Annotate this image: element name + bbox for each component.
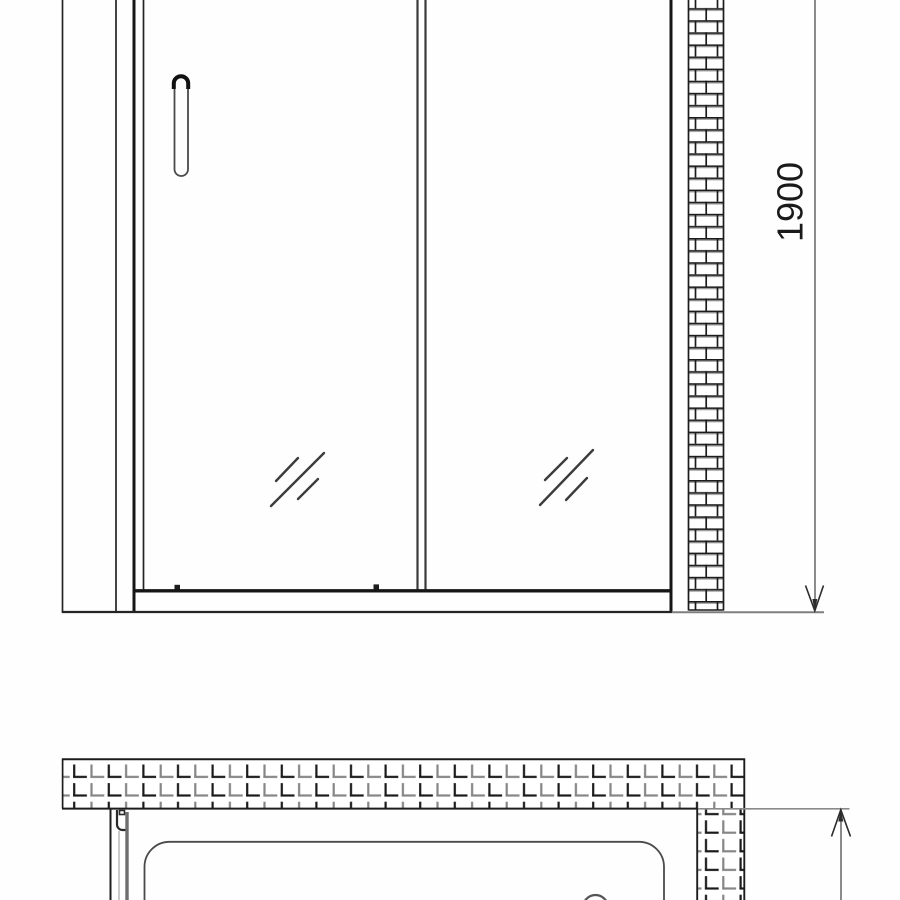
- svg-text:1900: 1900: [770, 162, 811, 242]
